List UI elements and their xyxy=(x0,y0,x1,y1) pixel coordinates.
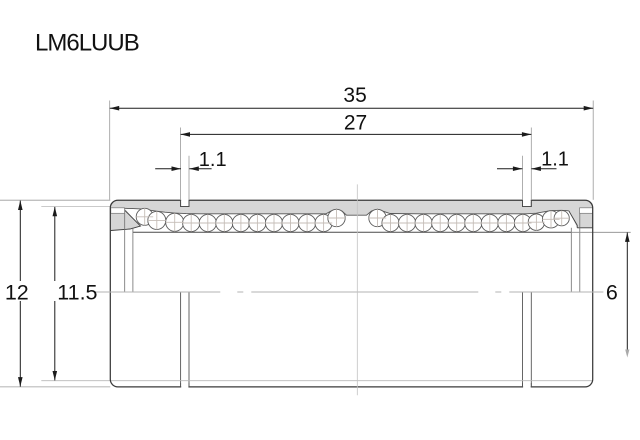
svg-text:27: 27 xyxy=(344,111,367,134)
svg-text:1.1: 1.1 xyxy=(541,148,569,170)
svg-text:1.1: 1.1 xyxy=(199,149,227,171)
svg-text:LM6LUUB: LM6LUUB xyxy=(35,30,139,57)
svg-text:6: 6 xyxy=(606,281,618,305)
svg-text:11.5: 11.5 xyxy=(57,281,97,305)
svg-text:12: 12 xyxy=(5,281,29,305)
svg-text:35: 35 xyxy=(343,84,366,107)
